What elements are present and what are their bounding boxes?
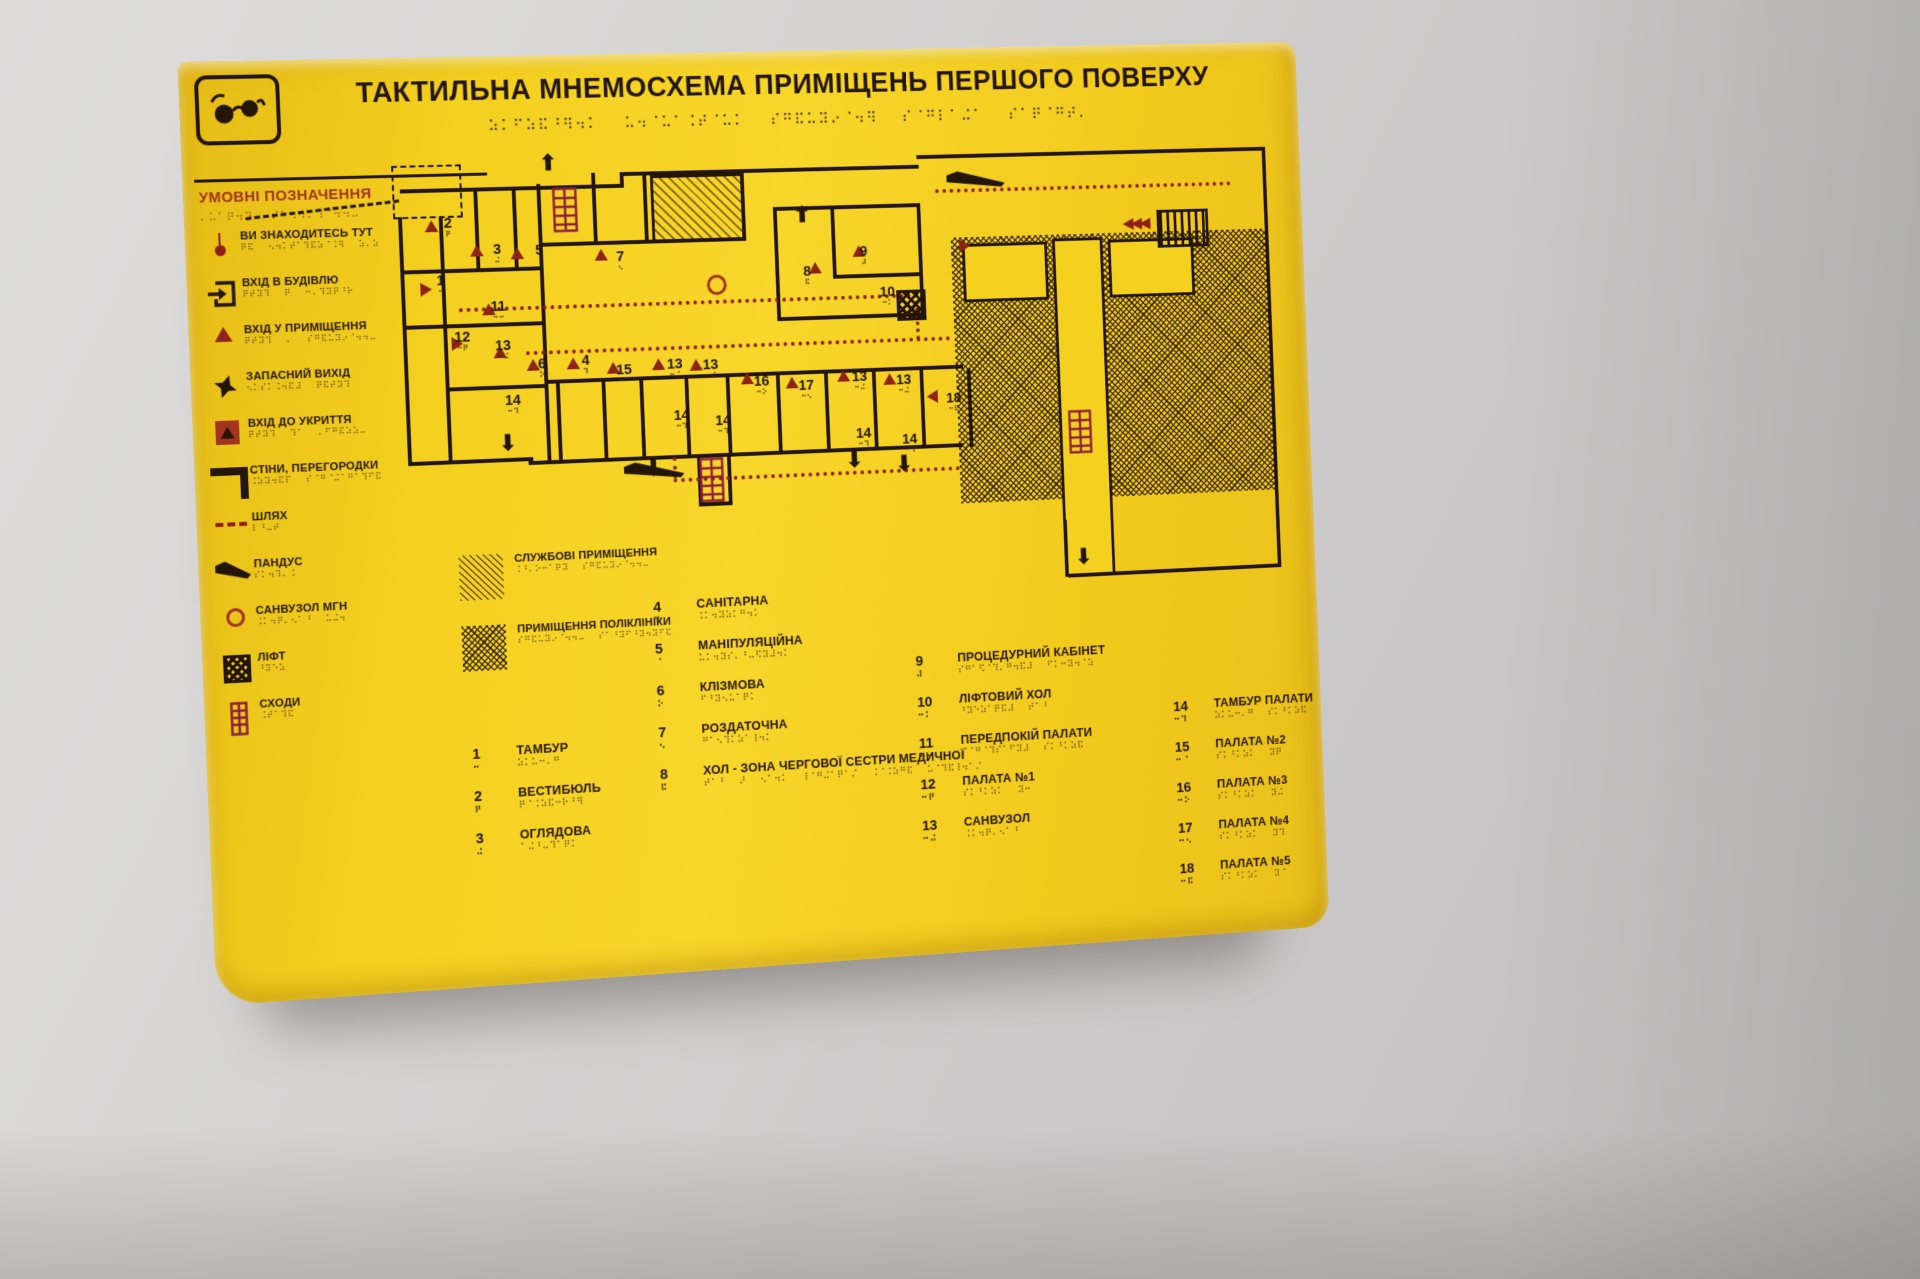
legend-item-braille: ⠘⠽⠑⠵ [258, 664, 286, 675]
room-number: 7⠢ [658, 722, 702, 752]
room-directory-item: 18⠒⠯ПАЛАТА №5⠎⠅⠘⠅⠵⠅⠀⠀⠽⠈ [1179, 851, 1326, 887]
entrance-marker-triangle [837, 370, 850, 382]
room-number-braille: ⠒⠈ [1175, 753, 1216, 766]
plan-room-number: 13⠒⠬ [667, 356, 684, 379]
wall-shading [1500, 0, 1920, 1279]
path-icon [210, 512, 252, 528]
stairs-icon [1068, 409, 1093, 458]
plan-room-number: 13⠒⠬ [702, 357, 719, 380]
plan-room-number-braille: ⠹ [582, 368, 590, 376]
plan-wall [398, 217, 412, 466]
plan-wall [408, 457, 533, 466]
plan-room [962, 242, 1049, 303]
plan-room-number: 13⠒⠬ [495, 338, 512, 361]
room-directory-item: 15⠒⠈ПАЛАТА №2⠎⠅⠘⠅⠵⠅⠀⠀⠽⠟ [1175, 731, 1322, 766]
service-room-hatch [650, 173, 746, 244]
room-directory-item: 17⠒⠢ПАЛАТА №4⠎⠅⠘⠅⠵⠅⠀⠀⠽⠹ [1178, 811, 1325, 847]
room-directory-item: 10⠒⠅ЛІФТОВИЙ ХОЛ⠘⠽⠑⠵⠁⠟⠯⠼⠀⠀⠞⠁⠘ [917, 682, 1143, 721]
plan-wall [403, 321, 546, 330]
you-are-here-icon [198, 231, 241, 257]
plan-room-number: 4⠹ [581, 353, 590, 376]
room-number: 15⠒⠈ [1175, 737, 1217, 766]
room-number: 11⠒⠒ [919, 733, 962, 762]
plan-wall [473, 191, 480, 270]
room-number-braille: ⠒⠬ [922, 832, 964, 845]
you-are-here-dashed-box [391, 164, 463, 219]
plan-room-number-braille: ⠒⠹ [856, 440, 872, 448]
ramp-icon [212, 558, 254, 582]
plan-room-number: 17⠒⠢ [798, 378, 814, 401]
plan-wall [400, 266, 543, 274]
plan-room-number: 6⠕ [538, 356, 547, 379]
room-number-braille: ⠒⠢ [1178, 834, 1219, 847]
plan-room-number-braille: ⠒⠈ [617, 377, 633, 385]
plan-room-number: 9⠼ [859, 244, 868, 266]
room-number: 6⠕ [656, 681, 700, 711]
plan-room-number-braille: ⠒⠕ [754, 388, 770, 396]
plan-wall [539, 237, 747, 247]
legend-item: ЛІФТ⠘⠽⠑⠵ [216, 641, 462, 688]
building-entrance-icon [200, 277, 243, 308]
room-directory-item: 8⠯ХОЛ - ЗОНА ЧЕРГОВОЇ СЕСТРИ МЕДИЧНОЇ⠞⠁⠘… [660, 755, 847, 793]
plan-room-number: 14⠒⠹ [505, 393, 522, 416]
plan-wall [833, 272, 923, 279]
plan-room-number: 14⠒⠹ [715, 413, 731, 436]
room-number-braille: ⠒⠕ [1177, 794, 1218, 807]
down-arrow-icon: ⬇ [644, 458, 662, 480]
plan-room-number: 2⠟ [444, 216, 453, 239]
room-directory-item: 14⠒⠹ТАМБУР ПАЛАТИ⠵⠅⠥⠒⠄⠛⠀⠀⠎⠅⠘⠅⠵⠯ [1173, 691, 1320, 726]
elevator-icon [896, 289, 926, 321]
room-number-braille: ⠒⠟ [921, 791, 963, 804]
legend-item-braille: ⠎⠅⠲⠹⠄⠨ [254, 569, 303, 581]
room-directory-column-4: 14⠒⠹ТАМБУР ПАЛАТИ⠵⠅⠥⠒⠄⠛⠀⠀⠎⠅⠘⠅⠵⠯15⠒⠈ПАЛАТ… [1173, 691, 1326, 902]
room-number-braille: ⠒⠅ [918, 708, 960, 721]
plan-room-number-braille: ⠒⠹ [674, 422, 690, 430]
plan-room-number-braille: ⠒⠯ [946, 405, 961, 413]
shelter-entrance-icon [206, 418, 249, 446]
room-number: 16⠒⠕ [1176, 778, 1218, 807]
path-dotted-line [459, 293, 919, 312]
plan-room-number: 1⠒ [436, 273, 445, 296]
room-directory-item: 7⠢РОЗДАТОЧНА⠛⠁⠢⠹⠅⠵⠁⠸⠲⠅ [658, 714, 845, 752]
entrance-marker-triangle [470, 244, 484, 256]
entrance-marker-triangle [883, 373, 896, 385]
room-directory-item: 16⠒⠕ПАЛАТА №3⠎⠅⠘⠅⠵⠅⠀⠀⠽⠬ [1176, 771, 1323, 806]
plan-room-number-braille: ⠒⠬ [703, 372, 719, 380]
plan-room-number: 10⠒⠅ [879, 285, 895, 308]
tactile-sign-panel: ТАКТИЛЬНА МНЕМОСХЕМА ПРИМІЩЕНЬ ПЕРШОГО П… [177, 42, 1329, 1006]
room-directory-item: 3⠬ОГЛЯДОВА⠁⠬⠘⠤⠹⠁⠟⠅ [475, 821, 638, 859]
stairs-icon [218, 699, 261, 737]
entrance-marker-triangle [785, 377, 798, 389]
entrance-marker-triangle [652, 358, 666, 370]
room-number: 17⠒⠢ [1178, 818, 1220, 847]
room-number: 10⠒⠅ [917, 692, 960, 721]
room-number: 1⠒ [472, 744, 517, 774]
room-directory-item: 9⠼ПРОЦЕДУРНИЙ КАБІНЕТ⠎⠛⠁⠫⠈⠹⠄⠛⠲⠯⠼⠀⠀⠋⠅⠒⠽⠲⠈… [915, 641, 1141, 680]
stairs-icon [699, 457, 725, 508]
plan-room-number-braille: ⠒⠬ [495, 353, 511, 361]
plan-room-number-braille: ⠢ [617, 264, 625, 272]
room-number-braille: ⠢ [659, 739, 703, 752]
plan-wall [642, 172, 649, 244]
accessible-wc-icon [214, 605, 256, 628]
plan-room-number-braille: ⠒⠬ [852, 384, 868, 392]
plan-room-number: 5⠈ [535, 243, 544, 266]
entrance-marker-triangle [420, 283, 432, 297]
room-number-braille: ⠹ [654, 614, 698, 627]
room-number-braille: ⠯ [660, 780, 704, 793]
entrance-marker-triangle [594, 249, 608, 261]
entrance-marker-triangle [510, 247, 524, 259]
room-number-braille: ⠈ [655, 655, 699, 668]
floor-plan: ⬆⬆⬇⬇⬇⬇⬇◀◀◀2⠟3⠬5⠈7⠢1⠒11⠒⠒8⠯9⠼10⠒⠅12⠒⠟13⠒⠬… [383, 139, 1290, 627]
ramp-icon [946, 170, 1005, 193]
legend-heading: УМОВНІ ПОЗНАЧЕННЯ [199, 185, 372, 206]
room-number-braille: ⠼ [916, 667, 958, 680]
plan-wall [872, 372, 879, 447]
legend-item-braille: ⠨⠞⠁⠹⠯ [260, 710, 301, 722]
plan-wall [830, 205, 837, 278]
plan-wall [639, 380, 646, 456]
entrance-marker-triangle [424, 220, 438, 232]
plan-room-number: 14⠒⠹ [673, 408, 690, 431]
plan-room-number-braille: ⠯ [804, 278, 812, 286]
legend-item: СХОДИ⠨⠞⠁⠹⠯ [218, 688, 464, 737]
plan-room-number: 14⠒⠹ [856, 426, 872, 449]
room-directory-item: 13⠒⠬САНВУЗОЛ⠨⠅⠲⠟⠄⠢⠁⠘ [922, 804, 1148, 845]
plan-room-number-braille: ⠒⠅ [880, 299, 896, 307]
eyeglasses-icon [194, 74, 282, 146]
legend-item-braille: ⠇⠘⠤⠞ [252, 523, 288, 535]
plan-wall [919, 370, 926, 445]
legend-item-braille: ⠟⠞⠽⠹⠀⠀⠟⠀⠀⠒⠄⠹⠽⠟⠘⠗ [242, 287, 354, 300]
down-arrow-icon: ⬇ [1075, 546, 1092, 568]
room-label-braille: ⠋⠘⠽⠢⠥⠁⠟⠅ [700, 691, 765, 705]
plan-room-number: 18⠒⠯ [946, 391, 962, 414]
plan-room-number: 14⠒⠹ [902, 432, 918, 455]
room-directory-item: 2⠟ВЕСТИБЮЛЬ⠟⠈⠨⠵⠯⠒⠗⠘⠻ [474, 779, 637, 816]
room-directory-item: 6⠕КЛІЗМОВА⠋⠘⠽⠢⠥⠁⠟⠅ [656, 673, 843, 710]
room-number: 14⠒⠹ [1173, 697, 1215, 726]
plan-wall [776, 375, 783, 450]
up-arrow-icon: ⬆ [793, 204, 811, 226]
plan-room-number: 11⠒⠒ [490, 299, 506, 322]
polyclinic-premises-hatch-icon [461, 624, 507, 671]
room-label-braille: ⠵⠅⠥⠒⠄⠛ [517, 755, 569, 769]
plan-wall [446, 384, 549, 392]
plan-room-number-braille: ⠒⠬ [667, 371, 683, 379]
plan-wall [916, 147, 1265, 159]
room-number-braille: ⠒⠯ [1180, 874, 1221, 887]
room-directory-item: 11⠒⠒ПЕРЕДПОКІЙ ПАЛАТИ⠎⠈⠛⠈⠹⠎⠁⠋⠽⠼⠀⠀⠎⠅⠘⠅⠵⠯ [919, 723, 1145, 763]
stairs-icon [552, 187, 579, 238]
room-directory-item: 5⠈МАНІПУЛЯЦІЙНА⠥⠅⠲⠽⠎⠄⠘⠤⠫⠽⠼⠲⠅ [655, 631, 842, 668]
plan-wall [602, 382, 609, 458]
down-arrow-icon: ⬇ [895, 453, 913, 475]
plan-room-number-braille: ⠒⠹ [902, 446, 918, 454]
plan-wall [773, 207, 781, 321]
room-number: 2⠟ [474, 786, 519, 816]
plan-wall [556, 383, 563, 459]
plan-room-number-braille: ⠒ [437, 288, 445, 296]
plan-room-number-braille: ⠕ [538, 371, 546, 379]
plan-room-number-braille: ⠒⠟ [455, 344, 471, 352]
room-number-braille: ⠒ [473, 760, 518, 773]
entrance-marker-triangle [927, 390, 938, 404]
plan-wall [620, 165, 919, 176]
plan-room-number-braille: ⠒⠒ [491, 314, 507, 322]
emergency-exit-icon [204, 371, 247, 400]
room-directory-column-2: 4⠹САНІТАРНА⠨⠅⠲⠽⠵⠅⠛⠲⠅5⠈МАНІПУЛЯЦІЙНА⠥⠅⠲⠽⠎… [653, 590, 848, 808]
plan-room-number-braille: ⠒⠬ [896, 387, 912, 395]
room-directory-column-1: 1⠒ТАМБУР⠵⠅⠥⠒⠄⠛2⠟ВЕСТИБЮЛЬ⠟⠈⠨⠵⠯⠒⠗⠘⠻3⠬ОГЛЯ… [472, 737, 639, 873]
walls-partitions-icon [208, 465, 251, 501]
plan-room-number: 8⠯ [803, 264, 812, 286]
plan-room-number: 13⠒⠬ [852, 369, 868, 392]
legend-item-braille: ⠢⠅⠎⠅⠨⠲⠯⠼⠀⠀⠟⠯⠞⠽⠹ [246, 380, 351, 394]
accessible-wc-icon [707, 274, 727, 295]
left-left-arrow-icon: ◀◀◀ [1123, 216, 1149, 231]
elevator-icon [216, 652, 259, 684]
area-legend-item: ПРИМІЩЕННЯ ПОЛІКЛІНІКИ⠎⠛⠯⠥⠽⠔⠈⠲⠲⠤⠀⠀⠎⠁⠘⠽⠋⠘… [461, 616, 663, 671]
room-directory-item: 1⠒ТАМБУР⠵⠅⠥⠒⠄⠛ [472, 737, 635, 774]
entrance-marker-triangle [566, 357, 580, 369]
path-dotted-line [526, 336, 950, 355]
room-number: 5⠈ [655, 639, 699, 668]
plan-room-number: 7⠢ [616, 249, 625, 272]
stairs-hatch-block [1156, 209, 1209, 248]
plan-room-number: 15⠒⠈ [616, 362, 633, 385]
plan-room-number-braille: ⠒⠹ [505, 407, 521, 415]
entrance-marker-triangle [689, 359, 703, 371]
plan-room-number: 16⠒⠕ [754, 374, 770, 397]
plan-wall [824, 373, 831, 448]
plan-room-number-braille: ⠒⠢ [799, 392, 815, 400]
room-number: 12⠒⠟ [920, 774, 963, 803]
room-directory-item: 12⠒⠟ПАЛАТА №1⠎⠅⠘⠅⠵⠅⠀⠀⠽⠒ [920, 763, 1146, 804]
room-number-braille: ⠟ [474, 802, 519, 816]
room-number: 9⠼ [915, 651, 958, 680]
room-number-braille: ⠒⠹ [1174, 713, 1215, 726]
plan-room-number: 12⠒⠟ [454, 330, 471, 353]
floor-shading [0, 1129, 1920, 1279]
plan-room-number-braille: ⠒⠹ [716, 428, 732, 436]
entrance-marker-triangle [959, 239, 970, 253]
room-entrance-icon [202, 324, 244, 342]
room-number: 13⠒⠬ [922, 815, 965, 844]
plan-room-number: 3⠬ [493, 242, 502, 265]
plan-room-number: 13⠒⠬ [896, 372, 912, 395]
plan-room-number-braille: ⠬ [493, 257, 501, 265]
room-number: 8⠯ [660, 764, 704, 794]
room-number-braille: ⠬ [476, 845, 521, 859]
down-arrow-icon: ⬇ [846, 449, 864, 471]
room-number-braille: ⠕ [657, 697, 701, 710]
plan-room-number-braille: ⠟ [444, 231, 452, 239]
room-number: 18⠒⠯ [1179, 858, 1221, 887]
plan-room-number-braille: ⠼ [860, 258, 868, 266]
room-directory-column-3: 9⠼ПРОЦЕДУРНИЙ КАБІНЕТ⠎⠛⠁⠫⠈⠹⠄⠛⠲⠯⠼⠀⠀⠋⠅⠒⠽⠲⠈… [915, 641, 1148, 859]
entrance-marker-triangle [740, 372, 754, 384]
up-arrow-icon: ⬆ [539, 152, 557, 174]
plan-room-number-braille: ⠈ [536, 257, 544, 265]
room-number-braille: ⠒⠒ [919, 750, 961, 763]
down-arrow-icon: ⬇ [499, 432, 518, 454]
room-number: 3⠬ [475, 828, 520, 858]
